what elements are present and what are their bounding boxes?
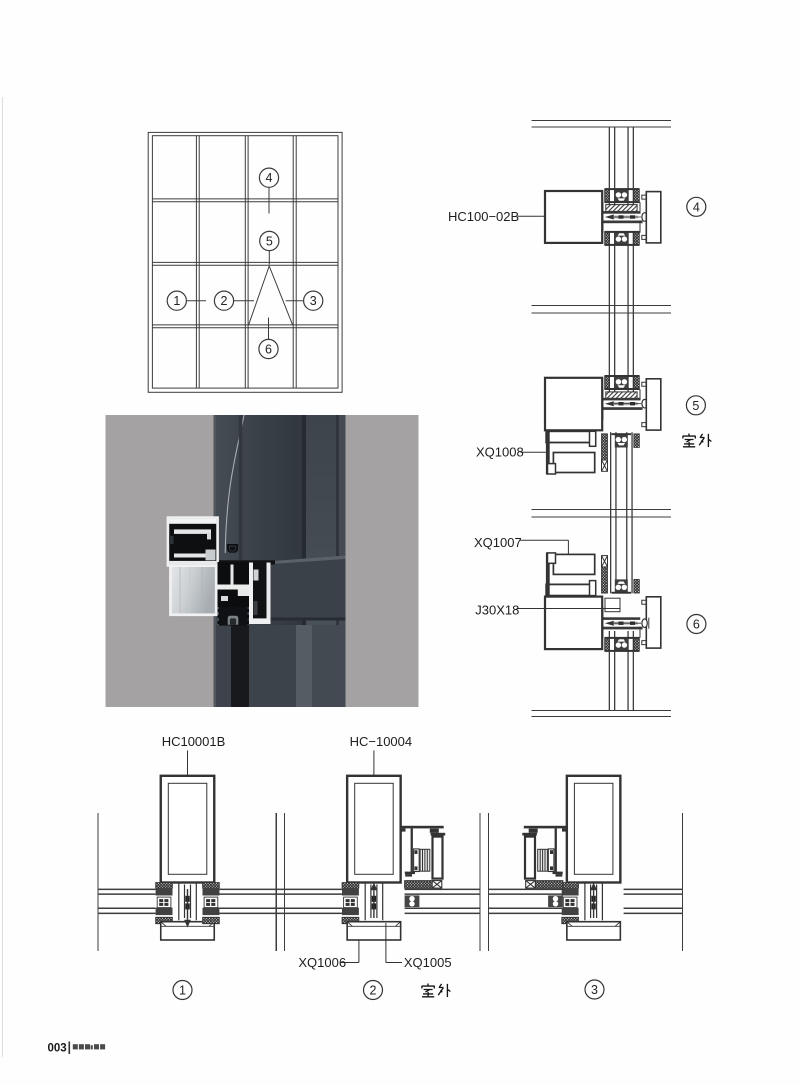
svg-text:J30X18: J30X18 [475,603,519,618]
svg-text:6: 6 [265,343,272,357]
svg-text:003: 003 [48,1042,67,1054]
svg-text:3: 3 [591,983,598,997]
svg-text:3: 3 [310,294,317,308]
svg-text:2: 2 [221,294,228,308]
svg-text:2: 2 [370,984,377,998]
svg-text:HC100−02B: HC100−02B [448,209,519,224]
svg-text:4: 4 [693,200,700,214]
svg-text:XQ1006: XQ1006 [298,955,346,970]
svg-text:5: 5 [692,399,699,413]
svg-text:6: 6 [693,618,700,632]
svg-text:1: 1 [179,984,186,998]
svg-text:HC−10004: HC−10004 [350,734,413,749]
svg-text:XQ1005: XQ1005 [404,955,452,970]
svg-text:5: 5 [266,235,273,249]
svg-text:HC10001B: HC10001B [162,734,226,749]
svg-text:XQ1008: XQ1008 [476,445,524,460]
svg-text:XQ1007: XQ1007 [474,535,522,550]
svg-text:1: 1 [173,294,180,308]
svg-text:4: 4 [266,171,273,185]
